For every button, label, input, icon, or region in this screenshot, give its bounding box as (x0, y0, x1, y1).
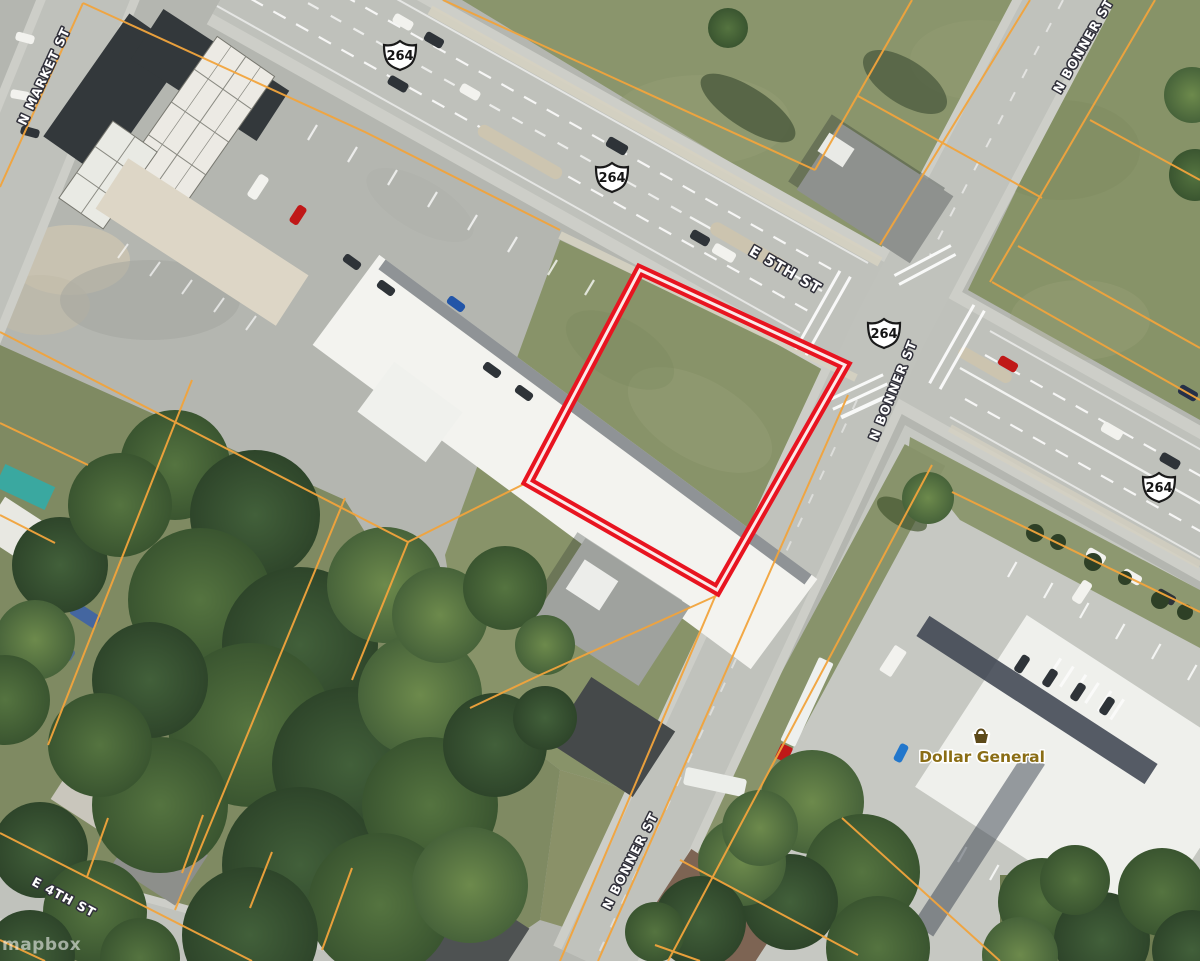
mapbox-wordmark[interactable]: mapbox (2, 935, 81, 955)
svg-text:Dollar General: Dollar General (919, 748, 1045, 766)
svg-text:264: 264 (870, 327, 897, 342)
svg-text:264: 264 (598, 171, 625, 186)
shopping-basket-icon (974, 730, 988, 744)
svg-text:264: 264 (386, 49, 413, 64)
map-viewport[interactable]: N MARKET ST E 5TH ST N BONNER ST N BONNE… (0, 0, 1200, 961)
satellite-map[interactable]: N MARKET ST E 5TH ST N BONNER ST N BONNE… (0, 0, 1200, 961)
svg-text:264: 264 (1145, 481, 1172, 496)
